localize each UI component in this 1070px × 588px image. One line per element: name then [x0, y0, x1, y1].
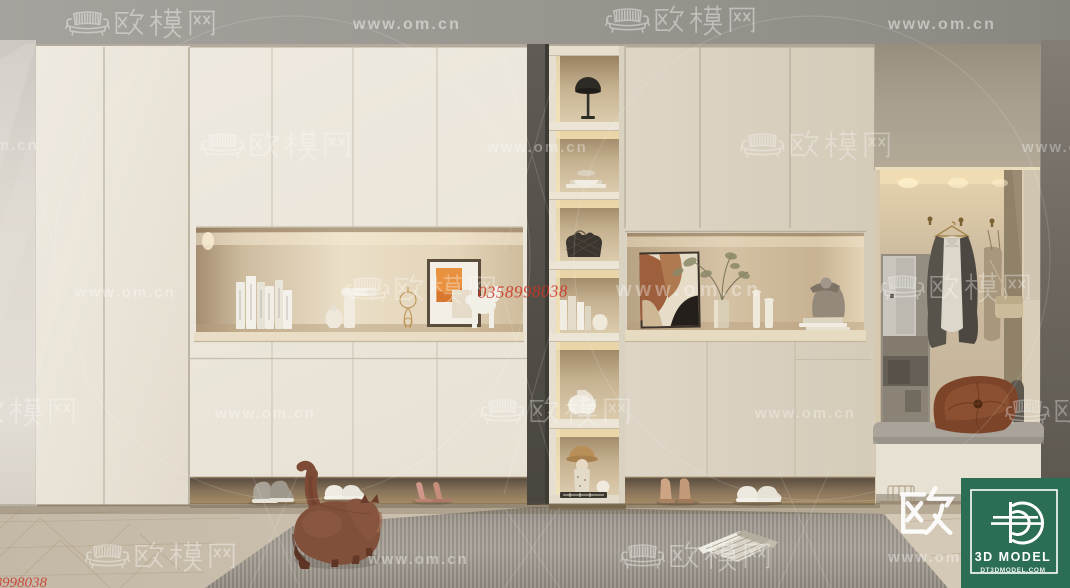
svg-text:www.om.cn: www.om.cn [367, 551, 469, 568]
svg-text:www.om.cn: www.om.cn [1021, 139, 1070, 156]
svg-text:DT3DMODEL.COM: DT3DMODEL.COM [980, 567, 1045, 574]
svg-text:www.om.cn: www.om.cn [887, 16, 996, 33]
svg-text:www.om.cn: www.om.cn [486, 139, 588, 156]
svg-text:www.om.cn: www.om.cn [352, 16, 461, 33]
svg-text:www.om.cn: www.om.cn [0, 137, 39, 154]
svg-text:www.om.cn: www.om.cn [754, 405, 856, 422]
svg-text:www.om.cn: www.om.cn [615, 279, 762, 301]
svg-text:0358998038: 0358998038 [478, 281, 568, 302]
svg-text:www.om.cn: www.om.cn [214, 405, 316, 422]
svg-text:0358998038: 0358998038 [0, 575, 48, 588]
svg-text:3D MODEL: 3D MODEL [975, 550, 1052, 564]
svg-text:www.om.cn: www.om.cn [74, 284, 176, 301]
